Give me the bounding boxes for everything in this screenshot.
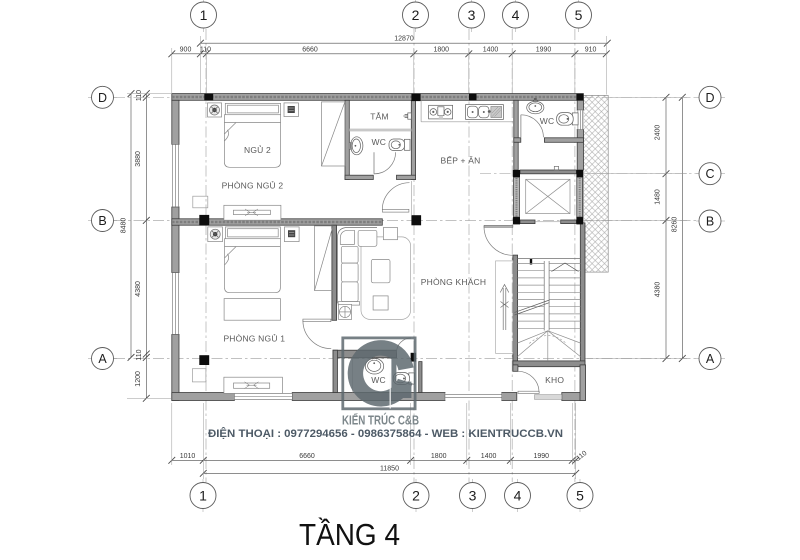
svg-text:110: 110 (136, 349, 143, 360)
svg-text:8260: 8260 (672, 217, 679, 233)
svg-text:1990: 1990 (536, 46, 552, 53)
svg-text:3: 3 (469, 488, 477, 504)
svg-text:5: 5 (576, 488, 584, 504)
svg-text:TẦNG 4: TẦNG 4 (299, 517, 400, 552)
svg-text:WC: WC (372, 137, 387, 147)
svg-text:ĐIỆN THOẠI : 0977294656 - 0986: ĐIỆN THOẠI : 0977294656 - 0986375864 - W… (208, 427, 563, 440)
svg-text:5: 5 (575, 7, 583, 23)
svg-text:8480: 8480 (120, 218, 127, 234)
svg-text:12870: 12870 (394, 36, 414, 43)
svg-text:B: B (706, 215, 714, 229)
svg-text:1800: 1800 (431, 453, 447, 460)
svg-text:1990: 1990 (534, 453, 550, 460)
svg-text:D: D (705, 91, 714, 105)
svg-text:A: A (98, 352, 107, 366)
svg-text:A: A (706, 352, 715, 366)
svg-text:2400: 2400 (654, 125, 661, 141)
svg-text:910: 910 (585, 46, 597, 53)
svg-text:4380: 4380 (654, 282, 661, 298)
svg-text:1200: 1200 (135, 371, 142, 387)
svg-text:PHÒNG NGỦ 2: PHÒNG NGỦ 2 (222, 180, 284, 191)
svg-text:1: 1 (199, 488, 207, 504)
svg-text:1400: 1400 (481, 453, 497, 460)
svg-text:PHÒNG KHÁCH: PHÒNG KHÁCH (421, 277, 487, 287)
svg-text:6660: 6660 (299, 453, 315, 460)
svg-text:6660: 6660 (302, 46, 318, 53)
svg-text:1010: 1010 (180, 453, 196, 460)
svg-text:B: B (98, 214, 106, 228)
svg-text:TẮM: TẮM (370, 112, 389, 122)
svg-text:PHÒNG NGỦ 1: PHÒNG NGỦ 1 (223, 333, 285, 344)
svg-text:4380: 4380 (135, 281, 142, 297)
svg-text:NGỦ 2: NGỦ 2 (244, 144, 271, 155)
svg-text:110: 110 (136, 90, 143, 101)
svg-text:3880: 3880 (135, 151, 142, 167)
svg-text:110: 110 (200, 46, 211, 53)
svg-text:900: 900 (180, 46, 192, 53)
svg-text:1480: 1480 (654, 189, 661, 205)
svg-text:2: 2 (412, 488, 420, 504)
svg-text:D: D (98, 91, 107, 105)
svg-text:WC: WC (540, 116, 555, 126)
svg-text:4: 4 (514, 488, 522, 504)
svg-text:KIẾN TRÚC C&B: KIẾN TRÚC C&B (342, 413, 419, 428)
svg-text:1: 1 (200, 7, 208, 23)
svg-text:BẾP + ĂN: BẾP + ĂN (441, 155, 481, 165)
svg-text:KHO: KHO (545, 375, 564, 385)
svg-text:2: 2 (412, 7, 420, 23)
svg-text:WC: WC (371, 375, 386, 385)
svg-text:1400: 1400 (483, 46, 499, 53)
svg-text:1800: 1800 (434, 46, 450, 53)
svg-text:C: C (705, 167, 714, 181)
svg-text:11850: 11850 (380, 466, 399, 473)
svg-text:4: 4 (512, 7, 520, 23)
svg-text:3: 3 (468, 7, 476, 23)
